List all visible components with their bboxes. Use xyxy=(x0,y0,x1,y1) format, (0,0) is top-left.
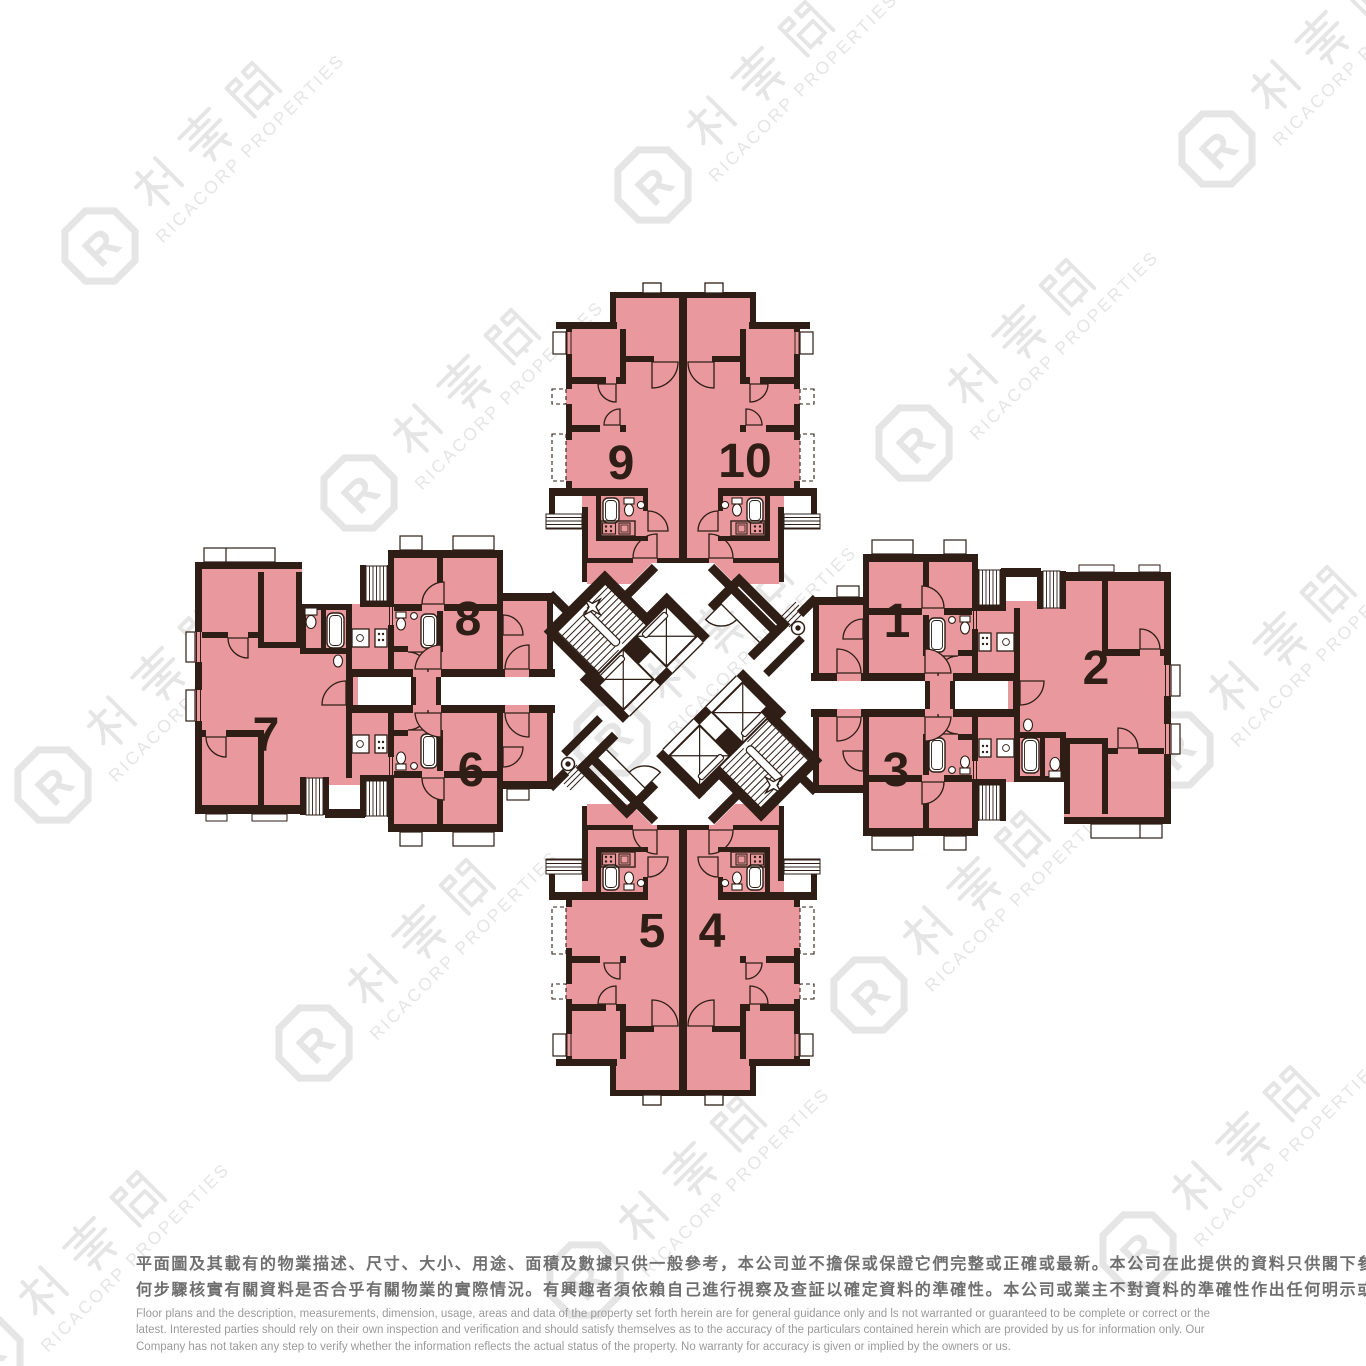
svg-text:何步驟核實有關資料是否合乎有關物業的實際情況。有興趣者須依賴: 何步驟核實有關資料是否合乎有關物業的實際情況。有興趣者須依賴自己進行視察及查証以… xyxy=(136,1280,1366,1299)
svg-text:4: 4 xyxy=(699,905,726,958)
svg-text:Company has not taken any step: Company has not taken any step to verify… xyxy=(136,1341,1011,1353)
svg-text:2: 2 xyxy=(1083,642,1110,695)
svg-text:9: 9 xyxy=(608,437,635,490)
svg-text:10: 10 xyxy=(718,435,771,488)
svg-text:平面圖及其載有的物業描述、尺寸、大小、用途、面積及數據只供一: 平面圖及其載有的物業描述、尺寸、大小、用途、面積及數據只供一般參考，本公司並不擔… xyxy=(136,1254,1366,1273)
svg-text:latest. Interested parties sho: latest. Interested parties should rely o… xyxy=(136,1324,1205,1336)
svg-text:1: 1 xyxy=(884,595,911,648)
svg-text:3: 3 xyxy=(883,744,910,797)
svg-text:5: 5 xyxy=(639,905,666,958)
svg-text:8: 8 xyxy=(455,593,482,646)
svg-text:Floor plans and the descriptio: Floor plans and the description, measure… xyxy=(136,1308,1210,1320)
svg-text:6: 6 xyxy=(458,744,485,797)
svg-text:7: 7 xyxy=(253,709,280,762)
